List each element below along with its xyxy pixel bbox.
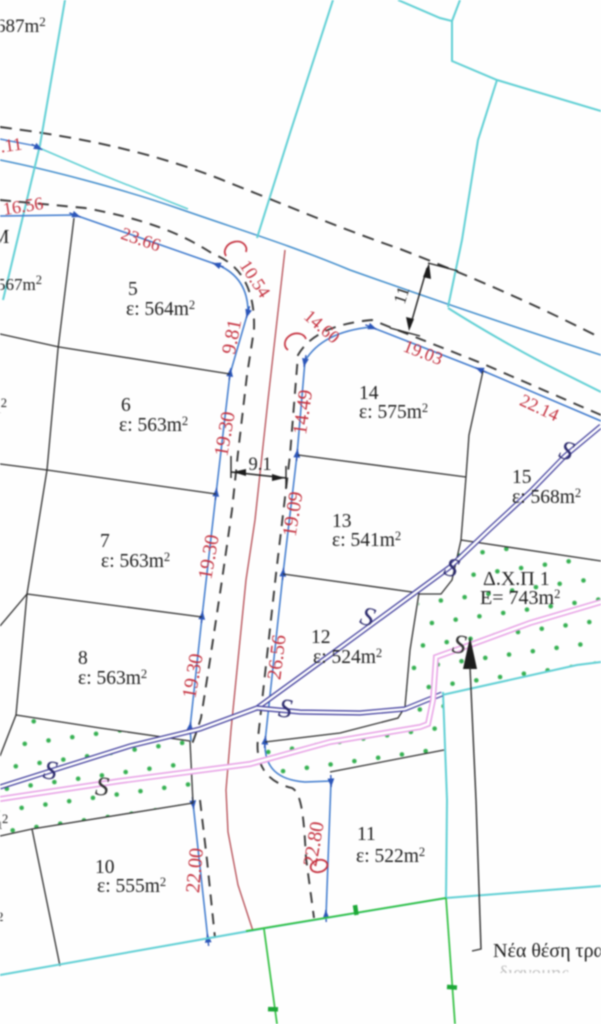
svg-text:ε: 555m2: ε: 555m2 bbox=[97, 875, 166, 897]
svg-text:ε: 524m2: ε: 524m2 bbox=[313, 646, 382, 668]
svg-text:9.1: 9.1 bbox=[248, 455, 271, 475]
svg-text:5: 5 bbox=[128, 279, 138, 300]
svg-text:ε: 575m2: ε: 575m2 bbox=[359, 401, 428, 423]
svg-text:14.49: 14.49 bbox=[289, 388, 317, 436]
svg-text:15: 15 bbox=[512, 467, 532, 488]
svg-text:ε: 564m2: ε: 564m2 bbox=[126, 298, 195, 320]
svg-text:ε: 541m2: ε: 541m2 bbox=[332, 529, 401, 551]
svg-text:M: M bbox=[0, 227, 9, 248]
svg-text:19.30: 19.30 bbox=[194, 533, 223, 581]
svg-text:ε: 568m2: ε: 568m2 bbox=[512, 486, 581, 508]
svg-text:8: 8 bbox=[78, 648, 88, 669]
svg-text:19.30: 19.30 bbox=[210, 410, 239, 458]
svg-text:19.30: 19.30 bbox=[178, 652, 207, 700]
svg-text:23.66: 23.66 bbox=[119, 223, 164, 255]
svg-text:S: S bbox=[357, 600, 380, 633]
svg-text:διανομης: διανομης bbox=[499, 963, 569, 984]
svg-text:687m2: 687m2 bbox=[0, 14, 46, 37]
svg-text:19.09: 19.09 bbox=[279, 490, 308, 538]
svg-text:6: 6 bbox=[121, 395, 131, 416]
svg-text:E= 743m2: E= 743m2 bbox=[480, 587, 560, 609]
svg-text:567m2: 567m2 bbox=[0, 273, 42, 294]
svg-text:7: 7 bbox=[100, 531, 110, 552]
svg-text:22.00: 22.00 bbox=[182, 847, 208, 894]
svg-text:26.56: 26.56 bbox=[263, 634, 290, 681]
svg-text:13: 13 bbox=[332, 511, 352, 532]
svg-text:S: S bbox=[277, 692, 295, 724]
svg-text:11: 11 bbox=[357, 824, 376, 845]
svg-text:.11: .11 bbox=[0, 134, 23, 157]
svg-text:m2: m2 bbox=[0, 396, 7, 418]
svg-text:ε: 563m2: ε: 563m2 bbox=[119, 414, 188, 436]
svg-text:ε: 563m2: ε: 563m2 bbox=[101, 550, 170, 572]
svg-text:ε: 522m2: ε: 522m2 bbox=[356, 845, 425, 867]
svg-text:10.54: 10.54 bbox=[236, 256, 275, 301]
svg-text:10: 10 bbox=[95, 857, 115, 878]
svg-text:11: 11 bbox=[389, 284, 413, 306]
svg-text:ε: 563m2: ε: 563m2 bbox=[78, 667, 147, 689]
svg-text:Νέα θέση τρα: Νέα θέση τρα bbox=[493, 940, 601, 962]
svg-text:19.03: 19.03 bbox=[401, 336, 446, 369]
svg-text:14.60: 14.60 bbox=[300, 306, 344, 348]
svg-text:9.81: 9.81 bbox=[218, 318, 246, 357]
svg-text:14: 14 bbox=[359, 383, 379, 404]
svg-text:12: 12 bbox=[311, 627, 331, 648]
svg-text:2: 2 bbox=[0, 909, 4, 924]
